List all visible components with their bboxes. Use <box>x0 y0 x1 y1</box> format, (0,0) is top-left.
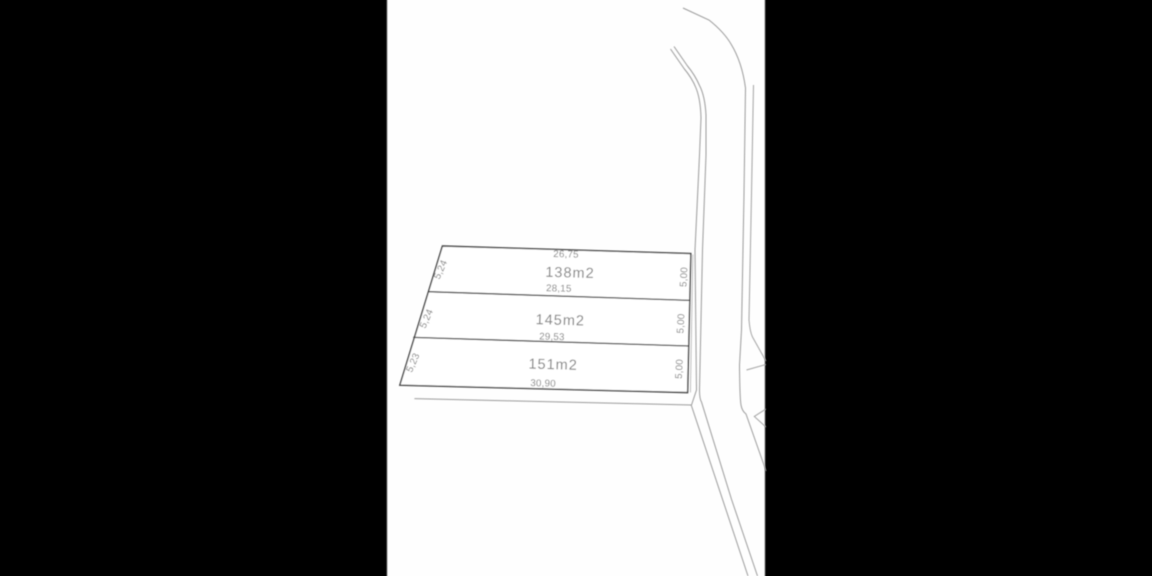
svg-text:26,75: 26,75 <box>553 249 579 261</box>
svg-text:5,00: 5,00 <box>678 266 690 287</box>
svg-text:145m2: 145m2 <box>535 312 585 329</box>
svg-text:28,15: 28,15 <box>546 283 572 295</box>
svg-text:5,00: 5,00 <box>674 358 686 379</box>
svg-text:151m2: 151m2 <box>528 357 578 374</box>
svg-text:5,00: 5,00 <box>675 313 687 334</box>
svg-text:30,90: 30,90 <box>530 378 556 390</box>
svg-text:29,53: 29,53 <box>539 331 565 343</box>
svg-text:138m2: 138m2 <box>545 265 595 282</box>
